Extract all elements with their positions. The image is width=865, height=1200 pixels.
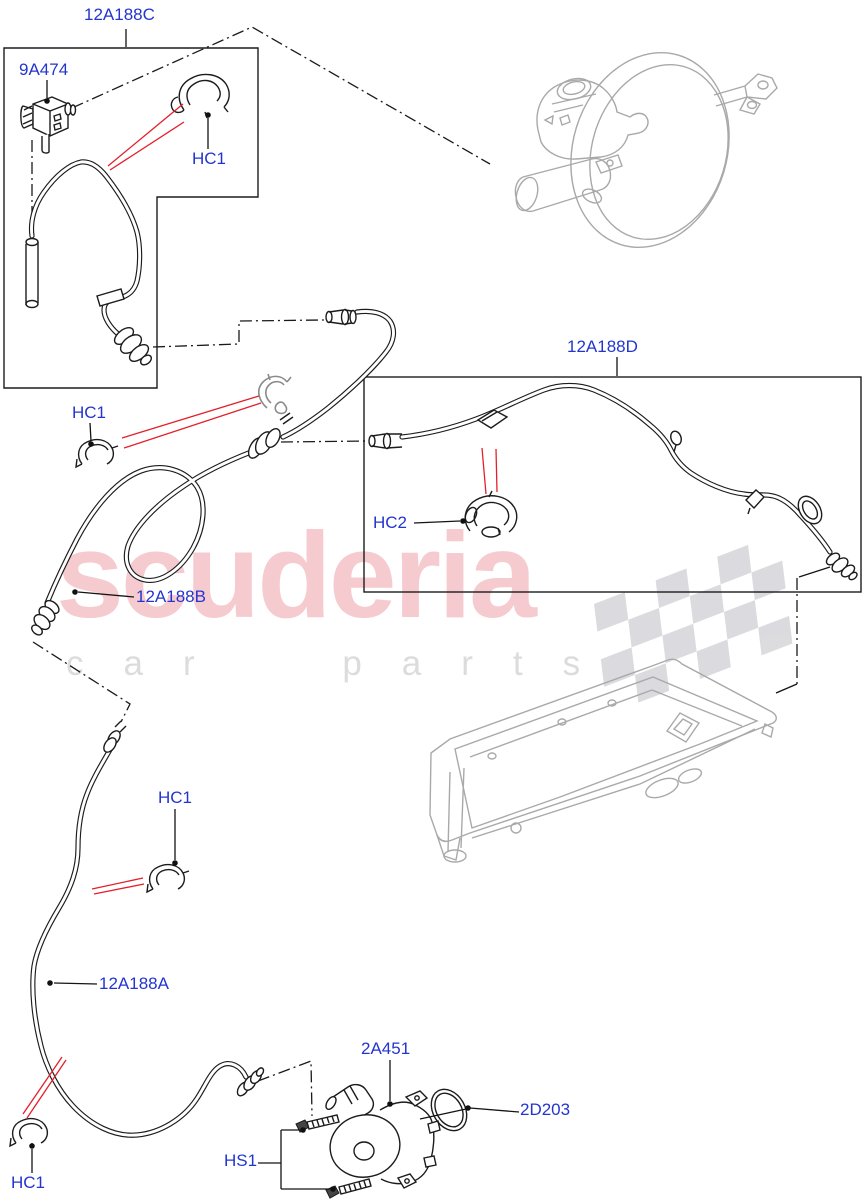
- parts-diagram: scuderia car parts: [0, 0, 865, 1200]
- part-label-12a188b: 12A188B: [136, 588, 206, 606]
- part-label-12a188a: 12A188A: [99, 975, 169, 993]
- valve-9a474-art: [21, 97, 76, 153]
- hose-12a188d-art: [369, 386, 858, 582]
- leader-lines: [29, 29, 617, 1192]
- part-label-hc2: HC2: [373, 514, 407, 532]
- hose-12a188b-art: [30, 310, 394, 637]
- part-label-9a474: 9A474: [19, 61, 68, 79]
- hose-12a188a-art: [33, 721, 265, 1135]
- clip-hc1-mid-left-art: [76, 440, 118, 467]
- clamp-hc2-art: [463, 491, 517, 537]
- box-12a188d-outline: [364, 377, 861, 592]
- vacuum-pump-art: [324, 1085, 440, 1188]
- red-locator-arrows: [23, 104, 497, 1118]
- clip-hc1-center-art: [147, 861, 189, 892]
- part-label-hc1-bottom: HC1: [11, 1174, 45, 1192]
- part-label-2a451: 2A451: [361, 1040, 410, 1058]
- part-label-hc1-mid: HC1: [72, 404, 106, 422]
- part-label-hs1: HS1: [224, 1152, 257, 1170]
- retainer-clip-art: [259, 374, 291, 413]
- part-label-hc1-center: HC1: [158, 789, 192, 807]
- connection-lines: [32, 27, 830, 1116]
- brake-booster-art: [512, 33, 777, 267]
- part-label-2d203: 2D203: [520, 1101, 570, 1119]
- part-label-hc1-top: HC1: [192, 150, 226, 168]
- engine-cover-art: [430, 659, 776, 862]
- part-label-12a188d: 12A188D: [567, 338, 638, 356]
- diagram-canvas: [0, 0, 865, 1200]
- hose-12a188c-art: [26, 162, 153, 367]
- part-label-12a188c: 12A188C: [84, 6, 155, 24]
- clip-hc1-top-art: [171, 74, 229, 118]
- clip-hc1-bottom-art: [10, 1119, 47, 1146]
